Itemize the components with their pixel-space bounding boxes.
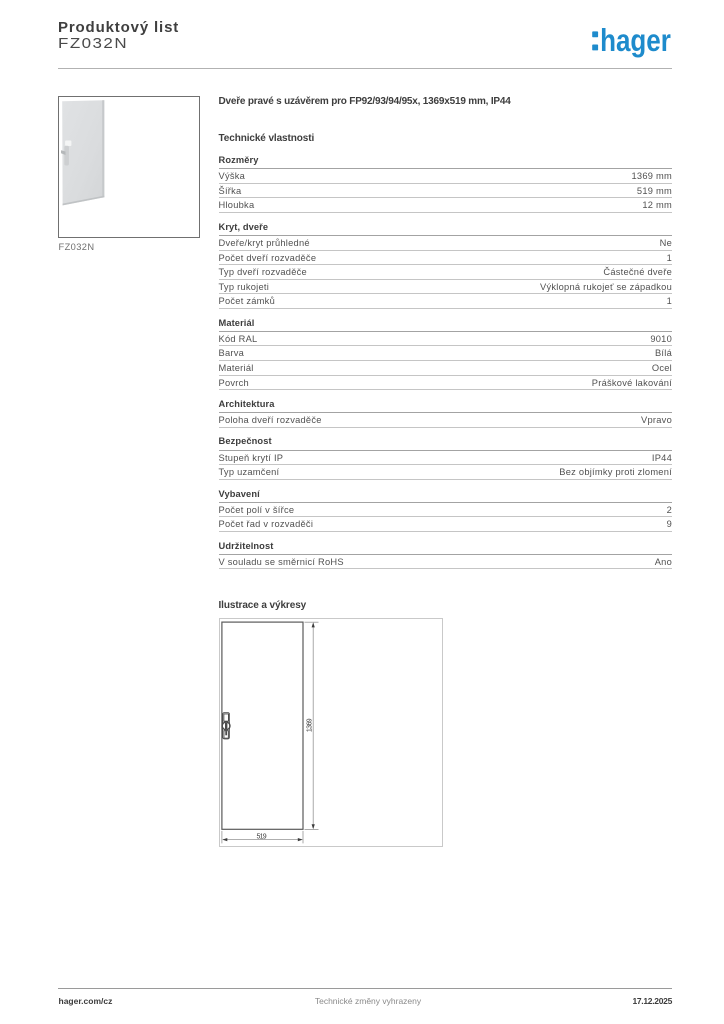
svg-text:519: 519: [256, 833, 266, 840]
svg-text:hager: hager: [600, 28, 671, 58]
svg-text:1369: 1369: [306, 718, 313, 732]
